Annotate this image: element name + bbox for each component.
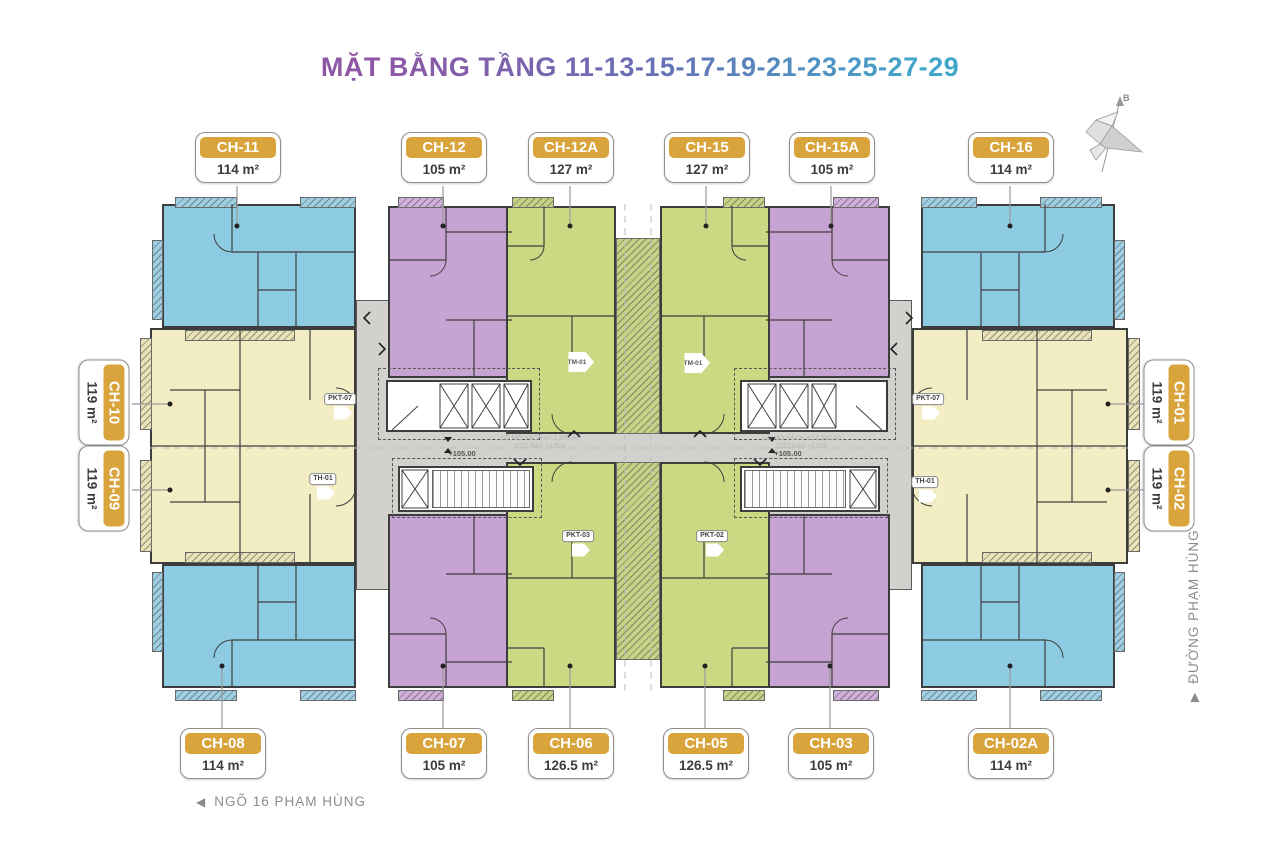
- unit-ch-12: [388, 206, 512, 378]
- unit-ch-16: [921, 204, 1115, 328]
- unit-area: 105 m²: [402, 158, 486, 182]
- unit-area: 126.5 m²: [664, 754, 748, 778]
- unit-area: 127 m²: [529, 158, 613, 182]
- balcony-hatch: [833, 690, 879, 701]
- balcony-hatch: [723, 197, 765, 208]
- unit-id-badge: CH-06: [533, 733, 609, 754]
- fine-print-line2: CỐT ĐÁY +3.525: [515, 443, 566, 450]
- unit-label-ch-06: CH-06 126.5 m²: [528, 728, 614, 779]
- unit-label-ch-11: CH-11 114 m²: [195, 132, 281, 183]
- unit-label-ch-01: CH-01 119 m²: [1144, 360, 1195, 446]
- balcony-hatch: [140, 460, 152, 552]
- balcony-hatch: [140, 338, 152, 430]
- fine-print: LỖ MỞ VÁCH KT.1.300.00 CỐT ĐÁY +3.525: [501, 435, 579, 451]
- unit-label-ch-02a: CH-02A 114 m²: [968, 728, 1054, 779]
- unit-id-badge: CH-09: [104, 451, 125, 527]
- fine-print-line1: LỖ MỞ VÁCH KT.1.300.00: [501, 435, 579, 442]
- unit-area: 105 m²: [789, 754, 873, 778]
- unit-id-badge: CH-05: [668, 733, 744, 754]
- street-name: ĐƯỜNG PHẠM HÙNG: [1186, 529, 1201, 683]
- balcony-hatch: [1114, 572, 1125, 652]
- elevator-core-left: [386, 380, 532, 432]
- unit-label-ch-12: CH-12 105 m²: [401, 132, 487, 183]
- unit-id-badge: CH-15: [669, 137, 745, 158]
- compass-icon: [1086, 96, 1142, 172]
- balcony-hatch: [833, 197, 879, 208]
- balcony-hatch: [152, 572, 163, 652]
- unit-area: 119 m²: [1145, 361, 1169, 445]
- unit-area: 114 m²: [969, 158, 1053, 182]
- unit-area: 114 m²: [969, 754, 1053, 778]
- unit-label-ch-15: CH-15 127 m²: [664, 132, 750, 183]
- annotation-pkt03: PKT-03: [562, 530, 594, 542]
- annotation-pkt07: PKT-07: [912, 393, 944, 405]
- center-shaft-hatch: [616, 462, 660, 660]
- balcony-hatch: [982, 330, 1092, 341]
- unit-label-ch-15a: CH-15A 105 m²: [789, 132, 875, 183]
- street-label-right: ▶ĐƯỜNG PHẠM HÙNG: [1186, 529, 1201, 702]
- balcony-hatch: [1128, 338, 1140, 430]
- unit-ch-11: [162, 204, 356, 328]
- balcony-hatch: [512, 690, 554, 701]
- balcony-hatch: [921, 690, 977, 701]
- unit-ch-02a: [921, 564, 1115, 688]
- unit-area: 114 m²: [196, 158, 280, 182]
- unit-id-badge: CH-12: [406, 137, 482, 158]
- unit-label-ch-10: CH-10 119 m²: [79, 360, 130, 446]
- street-arrow-up-icon: ▶: [1187, 692, 1201, 702]
- balcony-hatch: [1128, 460, 1140, 552]
- street-label-bottom: ◀NGÕ 16 PHẠM HÙNG: [196, 794, 366, 809]
- unit-label-ch-05: CH-05 126.5 m²: [663, 728, 749, 779]
- unit-id-badge: CH-12A: [533, 137, 609, 158]
- unit-area: 119 m²: [80, 447, 104, 531]
- stair-flight-right: [744, 470, 846, 508]
- balcony-hatch: [152, 240, 163, 320]
- unit-area: 119 m²: [80, 361, 104, 445]
- balcony-hatch: [175, 690, 237, 701]
- unit-area: 119 m²: [1145, 447, 1169, 531]
- stair-flight-left: [432, 470, 530, 508]
- balcony-hatch: [921, 197, 977, 208]
- unit-ch-15a: [766, 206, 890, 378]
- unit-id-badge: CH-10: [104, 365, 125, 441]
- balcony-hatch: [185, 552, 295, 563]
- street-name: NGÕ 16 PHẠM HÙNG: [214, 794, 366, 809]
- unit-wing-ch-01-ch-02: [912, 328, 1128, 564]
- center-shaft-hatch: [616, 238, 660, 434]
- balcony-hatch: [398, 690, 444, 701]
- unit-area: 114 m²: [181, 754, 265, 778]
- unit-label-ch-08: CH-08 114 m²: [180, 728, 266, 779]
- fine-print-line2: CỐT ĐÁY +3.525: [777, 443, 828, 450]
- annotation-pkt07: PKT-07: [324, 393, 356, 405]
- balcony-hatch: [723, 690, 765, 701]
- fine-print-line1: LỖ MỞ VÁCH KT.1.300.00: [763, 435, 841, 442]
- unit-label-ch-03: CH-03 105 m²: [788, 728, 874, 779]
- floor-plan-page: { "title": "MẶT BẰNG TẦNG 11-13-15-17-19…: [0, 0, 1280, 866]
- unit-area: 105 m²: [402, 754, 486, 778]
- balcony-hatch: [175, 197, 237, 208]
- street-arrow-left-icon: ◀: [196, 795, 206, 809]
- balcony-hatch: [185, 330, 295, 341]
- unit-label-ch-16: CH-16 114 m²: [968, 132, 1054, 183]
- unit-id-badge: CH-07: [406, 733, 482, 754]
- unit-area: 105 m²: [790, 158, 874, 182]
- annotation-pkt02: PKT-02: [696, 530, 728, 542]
- unit-id-badge: CH-02: [1169, 451, 1190, 527]
- unit-id-badge: CH-08: [185, 733, 261, 754]
- unit-ch-08: [162, 564, 356, 688]
- unit-id-badge: CH-15A: [794, 137, 870, 158]
- balcony-hatch: [1040, 197, 1102, 208]
- annotation-th01: TH-01: [911, 476, 938, 488]
- unit-area: 126.5 m²: [529, 754, 613, 778]
- unit-id-badge: CH-02A: [973, 733, 1049, 754]
- balcony-hatch: [398, 197, 444, 208]
- balcony-hatch: [1040, 690, 1102, 701]
- unit-id-badge: CH-11: [200, 137, 276, 158]
- annotation-th01: TH-01: [309, 473, 336, 485]
- unit-id-badge: CH-03: [793, 733, 869, 754]
- balcony-hatch: [300, 690, 356, 701]
- unit-label-ch-02: CH-02 119 m²: [1144, 446, 1195, 532]
- unit-label-ch-07: CH-07 105 m²: [401, 728, 487, 779]
- unit-ch-07: [388, 514, 512, 688]
- balcony-hatch: [982, 552, 1092, 563]
- balcony-hatch: [300, 197, 356, 208]
- fine-print: LỖ MỞ VÁCH KT.1.300.00 CỐT ĐÁY +3.525: [763, 435, 841, 451]
- balcony-hatch: [512, 197, 554, 208]
- unit-area: 127 m²: [665, 158, 749, 182]
- unit-wing-ch-10-ch-09: [150, 328, 356, 564]
- unit-label-ch-09: CH-09 119 m²: [79, 446, 130, 532]
- unit-id-badge: CH-01: [1169, 365, 1190, 441]
- unit-id-badge: CH-16: [973, 137, 1049, 158]
- balcony-hatch: [1114, 240, 1125, 320]
- unit-ch-03: [766, 514, 890, 688]
- elevator-core-right: [740, 380, 888, 432]
- level-annotation: +105.00: [448, 449, 475, 458]
- unit-label-ch-12a: CH-12A 127 m²: [528, 132, 614, 183]
